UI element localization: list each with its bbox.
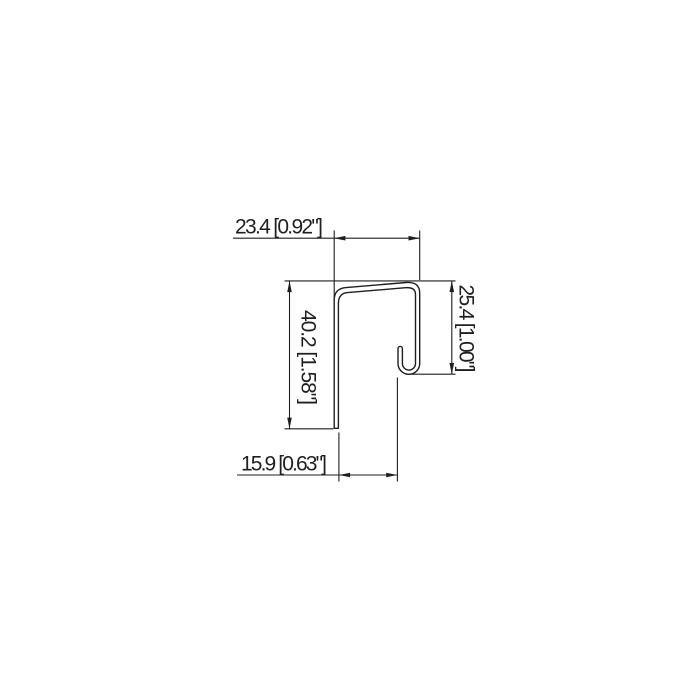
dim-right-height-label: 25.4 [1.00"] — [455, 285, 478, 373]
dim-top-width-label: 23.4 [0.92"] — [235, 216, 323, 239]
technical-drawing-canvas: 23.4 [0.92"] 40.2 [1.58"] 25.4 [1.00"] — [0, 0, 700, 700]
arrow-down-icon — [287, 418, 292, 429]
dim-right-height — [406, 281, 456, 374]
arrow-left-icon — [339, 473, 350, 478]
arrow-down-icon — [450, 363, 455, 374]
arrow-right-icon — [409, 236, 420, 241]
dim-left-height-label: 40.2 [1.58"] — [297, 310, 320, 405]
arrow-up-icon — [287, 281, 292, 292]
arrow-right-icon — [386, 473, 397, 478]
profile-outline — [334, 282, 420, 428]
arrow-left-icon — [334, 236, 345, 241]
dim-top-width — [233, 231, 420, 306]
profile-drawing: 23.4 [0.92"] 40.2 [1.58"] 25.4 [1.00"] — [0, 0, 700, 700]
arrow-up-icon — [450, 281, 455, 292]
dim-bottom-width-label: 15.9 [0.63"] — [241, 453, 327, 476]
